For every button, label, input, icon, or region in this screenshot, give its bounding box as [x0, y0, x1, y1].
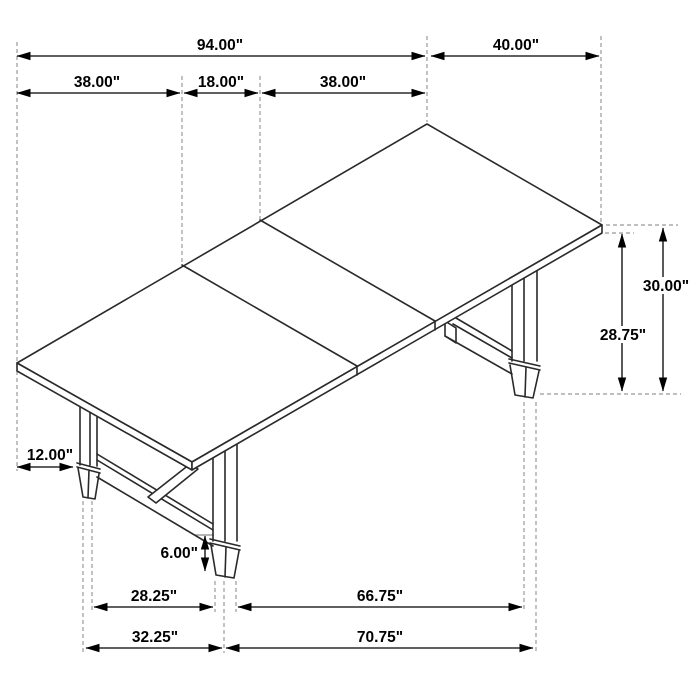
dim-label-left-leaf: 38.00" — [74, 74, 120, 91]
tabletop — [17, 124, 602, 470]
dim-label-foot-outer-width: 32.25" — [132, 629, 178, 646]
tapered-foot — [510, 365, 539, 398]
tabletop-top-face — [17, 124, 602, 462]
dim-label-center-leaf: 18.00" — [198, 74, 244, 91]
leg-post — [512, 271, 537, 361]
dim-label-underside-clearance: 28.75" — [600, 327, 646, 344]
right-trestle-stretcher — [445, 318, 512, 374]
dim-label-foot-height: 6.00" — [160, 545, 198, 562]
dim-label-overall-length: 94.00" — [197, 37, 243, 54]
dim-label-overall-height: 30.00" — [643, 278, 689, 295]
stretcher-beam — [445, 318, 512, 374]
table-dimension-drawing: 94.00" 40.00" 38.00" 18.00" 38.00" 30.00… — [0, 0, 700, 700]
left-back-leg — [77, 407, 100, 499]
leg-post — [80, 407, 97, 466]
right-front-leg — [509, 271, 540, 398]
table-drawing — [17, 124, 602, 578]
dim-label-right-leaf: 38.00" — [320, 74, 366, 91]
dim-label-foot-inner-width: 28.25" — [131, 588, 177, 605]
dim-label-top-overhang: 12.00" — [27, 447, 73, 464]
leg-post — [213, 444, 237, 541]
tapered-foot — [211, 545, 239, 578]
dimension-diagram-canvas: 94.00" 40.00" 38.00" 18.00" 38.00" 30.00… — [0, 0, 700, 700]
left-front-leg — [210, 444, 240, 578]
dim-label-overall-width: 40.00" — [493, 37, 539, 54]
dim-label-foot-inner-length: 66.75" — [357, 588, 403, 605]
dim-label-foot-outer-length: 70.75" — [357, 629, 403, 646]
